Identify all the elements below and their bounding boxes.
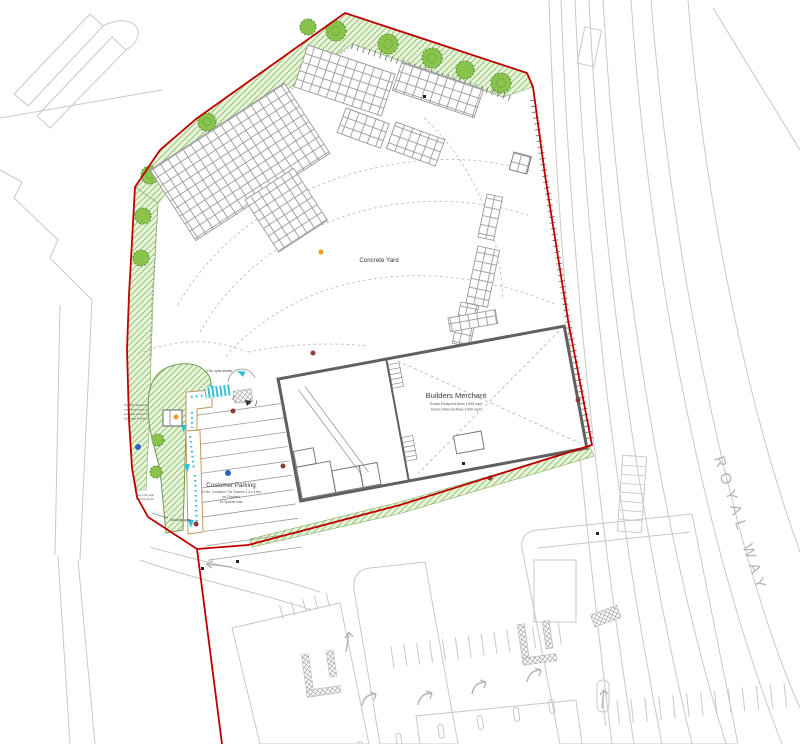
customer-parking-label: Customer Parking — [206, 482, 256, 489]
fence-note-line2: security fence — [136, 497, 154, 501]
kiosk-note-line2: meter kiosk location in — [124, 408, 148, 412]
cycle-stands-label: 2 No. cycle stands — [206, 369, 232, 373]
building-area-line1: Gross Footprint Area 1495 sqm — [430, 402, 483, 406]
parking-detail-line1: 14 No. Customer Car Spaces 2.4 x 4.8m — [201, 490, 261, 494]
building-name-label: Builders Merchant — [426, 391, 487, 400]
building-area-line2: Gross Internal Area 1490 sqm — [431, 408, 481, 412]
kiosk-note-line1: Possible Electricity — [124, 403, 148, 407]
parking-detail-line2: Inc Disabled — [222, 495, 240, 499]
kiosk-note-line4: Gateway Provider — [124, 417, 148, 421]
site-plan-page: Concrete Yard Builders Merchant Gross Fo… — [0, 0, 800, 744]
kiosk-note-line3: accessible location by — [124, 412, 148, 416]
security-gate-label: Security gate — [170, 518, 191, 522]
parking-detail-line3: 16 Spaces total — [220, 500, 243, 504]
concrete-yard-label: Concrete Yard — [359, 257, 399, 264]
meter-kiosk — [163, 410, 182, 426]
site-plan-drawing: Concrete Yard Builders Merchant Gross Fo… — [0, 0, 800, 744]
